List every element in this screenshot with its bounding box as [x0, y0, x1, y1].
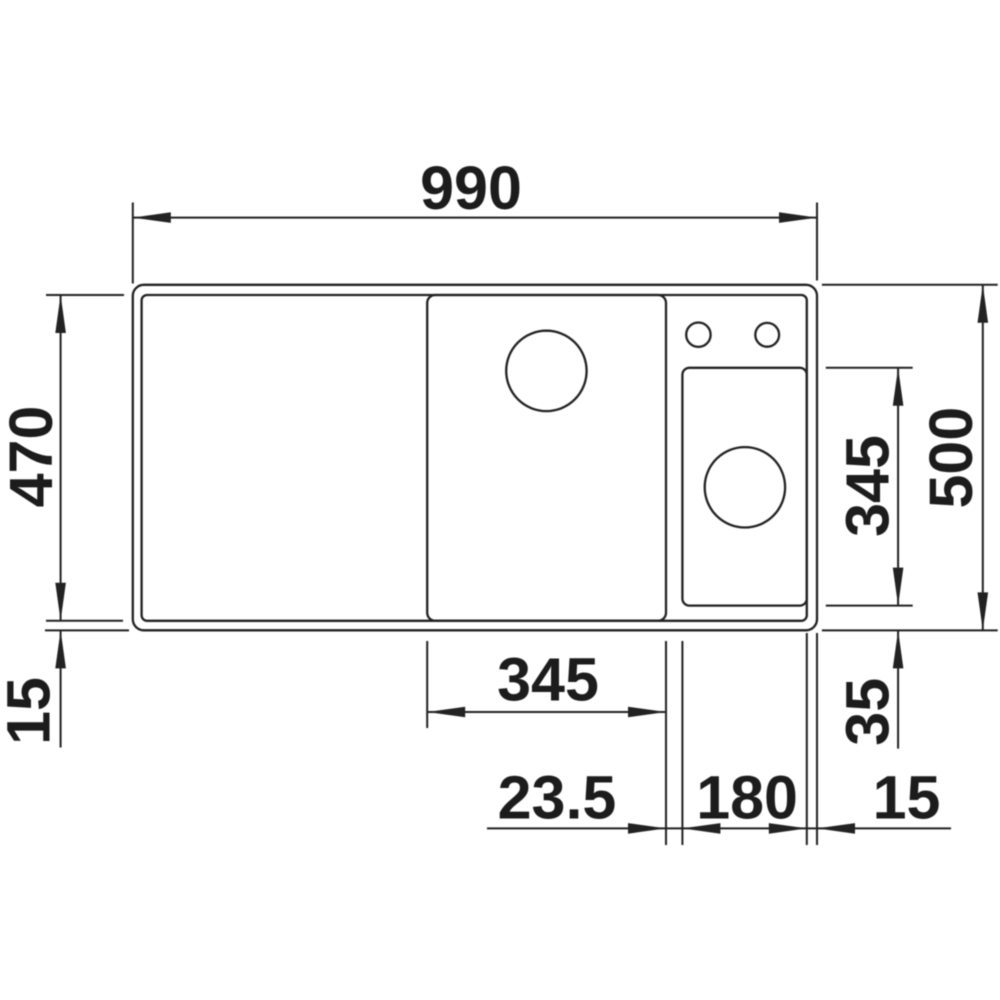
- svg-text:470: 470: [0, 406, 65, 508]
- svg-text:15: 15: [0, 677, 63, 745]
- svg-text:345: 345: [497, 646, 599, 714]
- svg-text:15: 15: [873, 764, 941, 832]
- svg-text:990: 990: [420, 154, 522, 222]
- svg-text:345: 345: [834, 435, 902, 537]
- svg-text:180: 180: [696, 764, 798, 832]
- svg-text:500: 500: [917, 407, 985, 509]
- svg-text:23.5: 23.5: [498, 764, 617, 832]
- svg-text:35: 35: [833, 678, 901, 746]
